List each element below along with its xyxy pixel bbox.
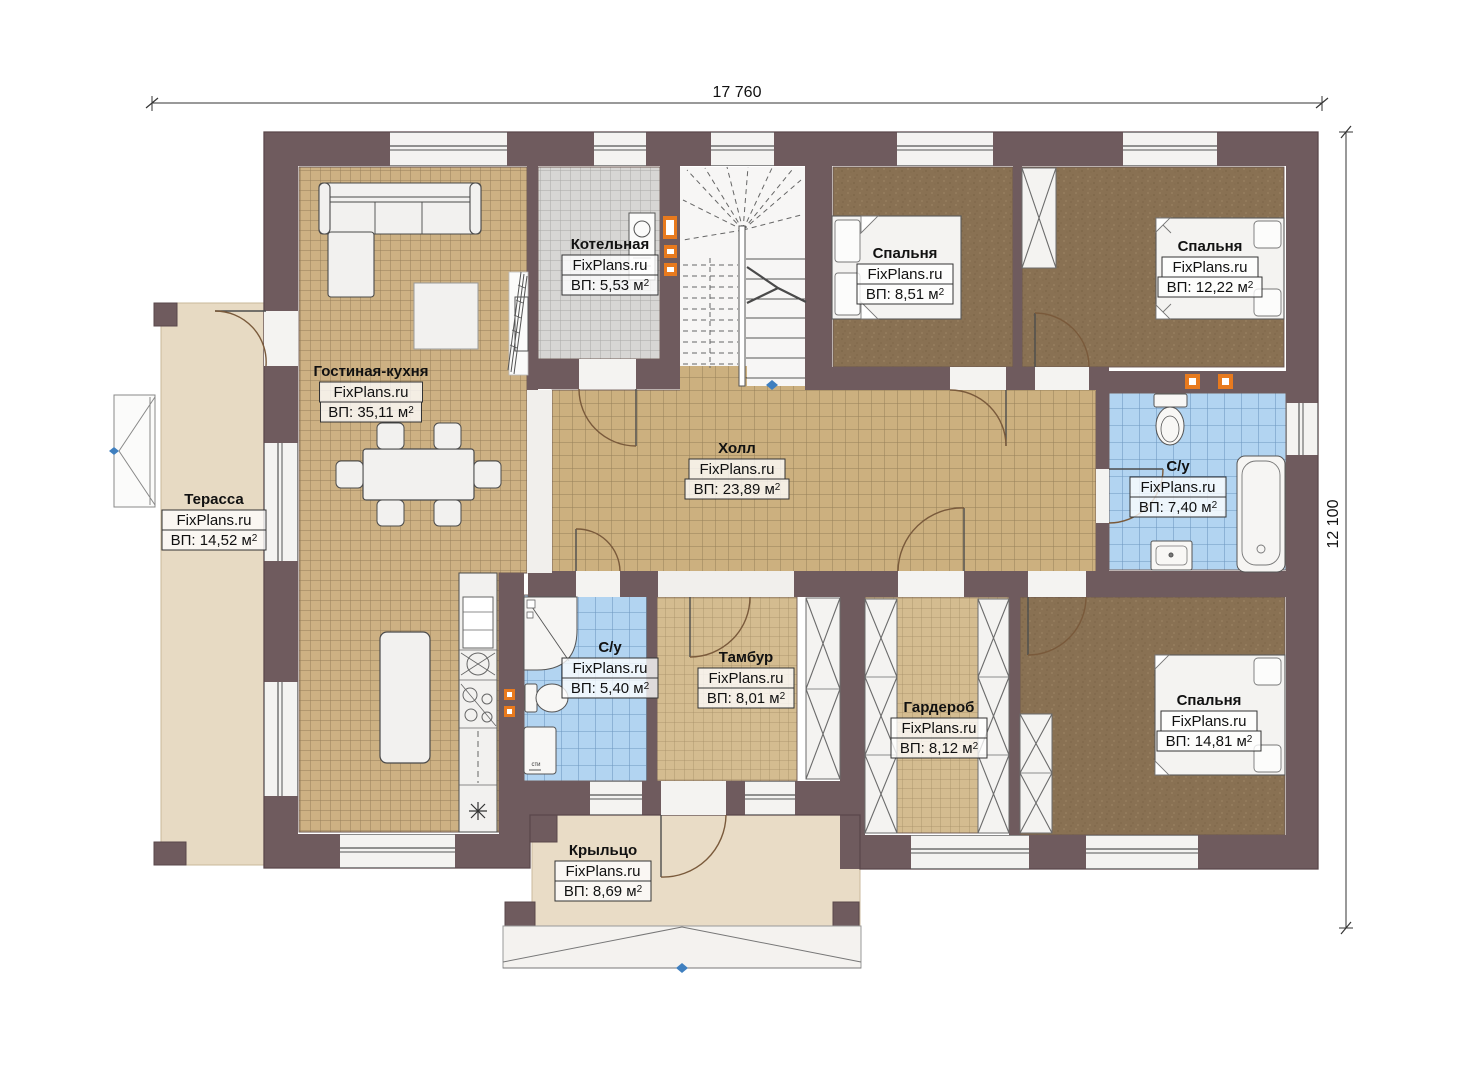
svg-text:Спальня: Спальня bbox=[1178, 238, 1243, 255]
svg-text:С/у: С/у bbox=[1166, 458, 1190, 475]
svg-text:FixPlans.ru: FixPlans.ru bbox=[572, 660, 647, 677]
svg-text:FixPlans.ru: FixPlans.ru bbox=[565, 863, 640, 880]
svg-text:FixPlans.ru: FixPlans.ru bbox=[1140, 479, 1215, 496]
svg-text:Спальня: Спальня bbox=[873, 245, 938, 262]
svg-text:12 100: 12 100 bbox=[1325, 499, 1342, 548]
svg-text:FixPlans.ru: FixPlans.ru bbox=[901, 720, 976, 737]
svg-text:ВП: 8,51 м2: ВП: 8,51 м2 bbox=[866, 286, 945, 303]
svg-text:Тамбур: Тамбур bbox=[719, 649, 773, 666]
svg-text:ВП: 12,22 м2: ВП: 12,22 м2 bbox=[1167, 279, 1254, 296]
svg-text:ВП: 14,81 м2: ВП: 14,81 м2 bbox=[1166, 733, 1253, 750]
svg-text:ВП: 7,40 м2: ВП: 7,40 м2 bbox=[1139, 499, 1218, 516]
svg-text:ВП: 8,12 м2: ВП: 8,12 м2 bbox=[900, 740, 979, 757]
svg-text:Крыльцо: Крыльцо bbox=[569, 842, 637, 859]
svg-text:ВП: 23,89 м2: ВП: 23,89 м2 bbox=[694, 481, 781, 498]
svg-text:FixPlans.ru: FixPlans.ru bbox=[333, 384, 408, 401]
svg-text:ВП: 35,11 м2: ВП: 35,11 м2 bbox=[328, 404, 414, 421]
svg-text:Холл: Холл bbox=[718, 440, 756, 457]
svg-text:ВП: 5,40 м2: ВП: 5,40 м2 bbox=[571, 680, 650, 697]
svg-text:FixPlans.ru: FixPlans.ru bbox=[699, 461, 774, 478]
svg-text:ВП: 14,52 м2: ВП: 14,52 м2 bbox=[171, 532, 258, 549]
svg-text:ВП: 8,01 м2: ВП: 8,01 м2 bbox=[707, 690, 786, 707]
svg-text:FixPlans.ru: FixPlans.ru bbox=[572, 257, 647, 274]
svg-text:Спальня: Спальня bbox=[1177, 692, 1242, 709]
svg-text:С/у: С/у bbox=[598, 639, 622, 656]
svg-text:17 760: 17 760 bbox=[713, 84, 762, 101]
svg-text:FixPlans.ru: FixPlans.ru bbox=[867, 266, 942, 283]
svg-text:FixPlans.ru: FixPlans.ru bbox=[1171, 713, 1246, 730]
svg-text:FixPlans.ru: FixPlans.ru bbox=[708, 670, 783, 687]
svg-text:Гостиная-кухня: Гостиная-кухня bbox=[314, 363, 429, 380]
svg-text:FixPlans.ru: FixPlans.ru bbox=[176, 512, 251, 529]
svg-text:FixPlans.ru: FixPlans.ru bbox=[1172, 259, 1247, 276]
svg-text:ВП: 5,53 м2: ВП: 5,53 м2 bbox=[571, 277, 650, 294]
svg-text:ВП: 8,69 м2: ВП: 8,69 м2 bbox=[564, 883, 643, 900]
svg-text:Гардероб: Гардероб bbox=[904, 699, 975, 716]
svg-text:Котельная: Котельная bbox=[571, 236, 650, 253]
svg-text:сти: сти bbox=[531, 762, 540, 768]
svg-text:Терасса: Терасса bbox=[184, 491, 244, 508]
